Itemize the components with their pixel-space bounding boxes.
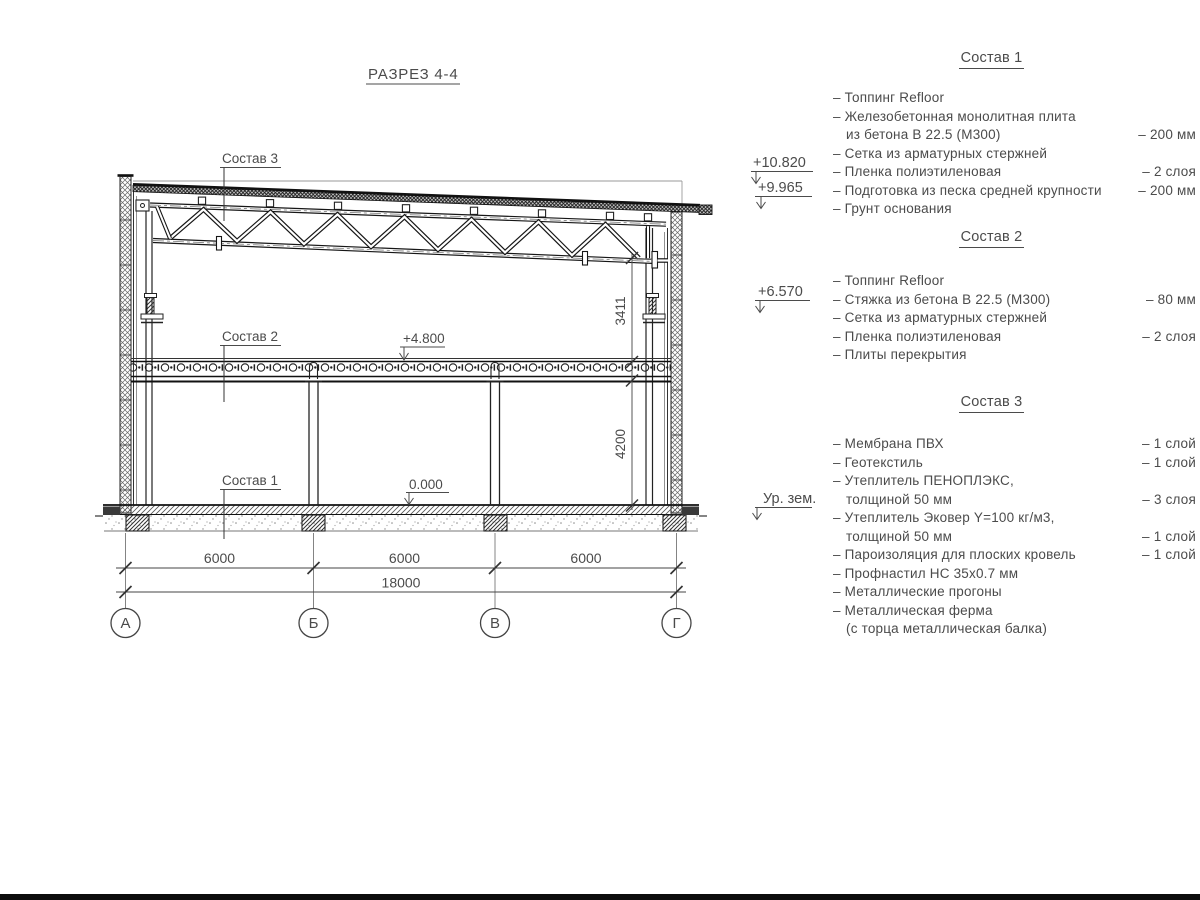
- elevation-ground-value: Ур. зем.: [763, 491, 816, 507]
- elevation-roof-edge: +9.965: [755, 180, 812, 209]
- axis-label-g: Г: [672, 615, 680, 632]
- elevation-console: +6.570: [755, 284, 810, 313]
- material-row: – Грунт основания: [833, 200, 1196, 219]
- material-row: – Сетка из арматурных стержней: [833, 309, 1196, 328]
- material-row: – Пленка полиэтиленовая– 2 слоя: [833, 328, 1196, 347]
- axis-label-a: А: [120, 615, 130, 632]
- dim-span-3: 6000: [570, 550, 601, 566]
- material-row: – Геотекстиль– 1 слой: [833, 454, 1196, 473]
- material-row: – Топпинг Refloor: [833, 272, 1196, 291]
- axis-bubbles: А Б В Г: [111, 609, 691, 638]
- sostav-2-list: Состав 2 – Топпинг Refloor – Стяжка из б…: [833, 229, 1196, 365]
- callout-sostav-1-label: Состав 1: [222, 473, 278, 488]
- elevation-ground: Ур. зем.: [753, 491, 817, 520]
- axis-label-b: Б: [309, 615, 319, 632]
- elevation-floor2: +4.800: [400, 331, 446, 360]
- material-row: – Утеплитель ПЕНОПЛЭКС,: [833, 472, 1196, 491]
- drawing-title-text: РАЗРЕЗ 4-4: [368, 66, 459, 83]
- dim-upper-height: 3411: [613, 296, 628, 325]
- sheet: 3411 4200 6000 6000 6000 18000 А Б В Г: [0, 0, 1200, 900]
- dim-lower-height: 4200: [613, 429, 628, 459]
- material-row: – Стяжка из бетона В 22.5 (М300)– 80 мм: [833, 291, 1196, 310]
- dim-total: 18000: [382, 575, 421, 591]
- elevation-parapet-value: +10.820: [753, 155, 806, 171]
- material-row: – Подготовка из песка средней крупности–…: [833, 182, 1196, 201]
- dim-span-1: 6000: [204, 550, 235, 566]
- sostav-2-heading: Состав 2: [833, 229, 1196, 248]
- material-row: – Железобетонная монолитная плита: [833, 108, 1196, 127]
- callout-sostav-2-label: Состав 2: [222, 329, 278, 344]
- elevation-console-value: +6.570: [758, 284, 803, 300]
- dim-span-2: 6000: [389, 550, 420, 566]
- elevation-roof-edge-value: +9.965: [758, 180, 803, 196]
- left-wall: [118, 176, 153, 514]
- material-row: (с торца металлическая балка): [833, 620, 1196, 639]
- material-row: толщиной 50 мм– 3 слоя: [833, 491, 1196, 510]
- elevation-floor2-value: +4.800: [403, 331, 445, 346]
- ground-floor: [95, 505, 707, 531]
- material-row: – Пленка полиэтиленовая– 2 слоя: [833, 163, 1196, 182]
- material-row: – Профнастил НС 35х0.7 мм: [833, 565, 1196, 584]
- material-row: – Металлические прогоны: [833, 583, 1196, 602]
- material-row: – Мембрана ПВХ– 1 слой: [833, 435, 1196, 454]
- sostav-3-list: Состав 3 – Мембрана ПВХ– 1 слой – Геотек…: [833, 394, 1196, 639]
- consoles: [141, 294, 665, 323]
- sostav-3-heading: Состав 3: [833, 394, 1196, 413]
- axis-label-v: В: [490, 615, 500, 632]
- material-row: – Сетка из арматурных стержней: [833, 145, 1196, 164]
- material-row: из бетона В 22.5 (М300)– 200 мм: [833, 126, 1196, 145]
- bottom-dimensions: 6000 6000 6000 18000: [116, 533, 686, 609]
- drawing-title: РАЗРЕЗ 4-4: [366, 66, 460, 84]
- sostav-1-list: Состав 1 – Топпинг Refloor – Железобетон…: [833, 50, 1196, 219]
- material-row: – Металлическая ферма: [833, 602, 1196, 621]
- material-row: – Утеплитель Эковер Y=100 кг/м3,: [833, 509, 1196, 528]
- sostav-1-heading: Состав 1: [833, 50, 1196, 69]
- material-row: – Плиты перекрытия: [833, 346, 1196, 365]
- material-row: – Топпинг Refloor: [833, 89, 1196, 108]
- callout-sostav-3-label: Состав 3: [222, 151, 278, 166]
- elevation-floor1: 0.000: [405, 477, 450, 505]
- material-row: – Пароизоляция для плоских кровель– 1 сл…: [833, 546, 1196, 565]
- columns: [305, 363, 504, 506]
- elevation-floor1-value: 0.000: [409, 477, 443, 492]
- page-edge-bar: [0, 894, 1200, 900]
- intermediate-floor: [131, 359, 671, 382]
- material-row: толщиной 50 мм– 1 слой: [833, 528, 1196, 547]
